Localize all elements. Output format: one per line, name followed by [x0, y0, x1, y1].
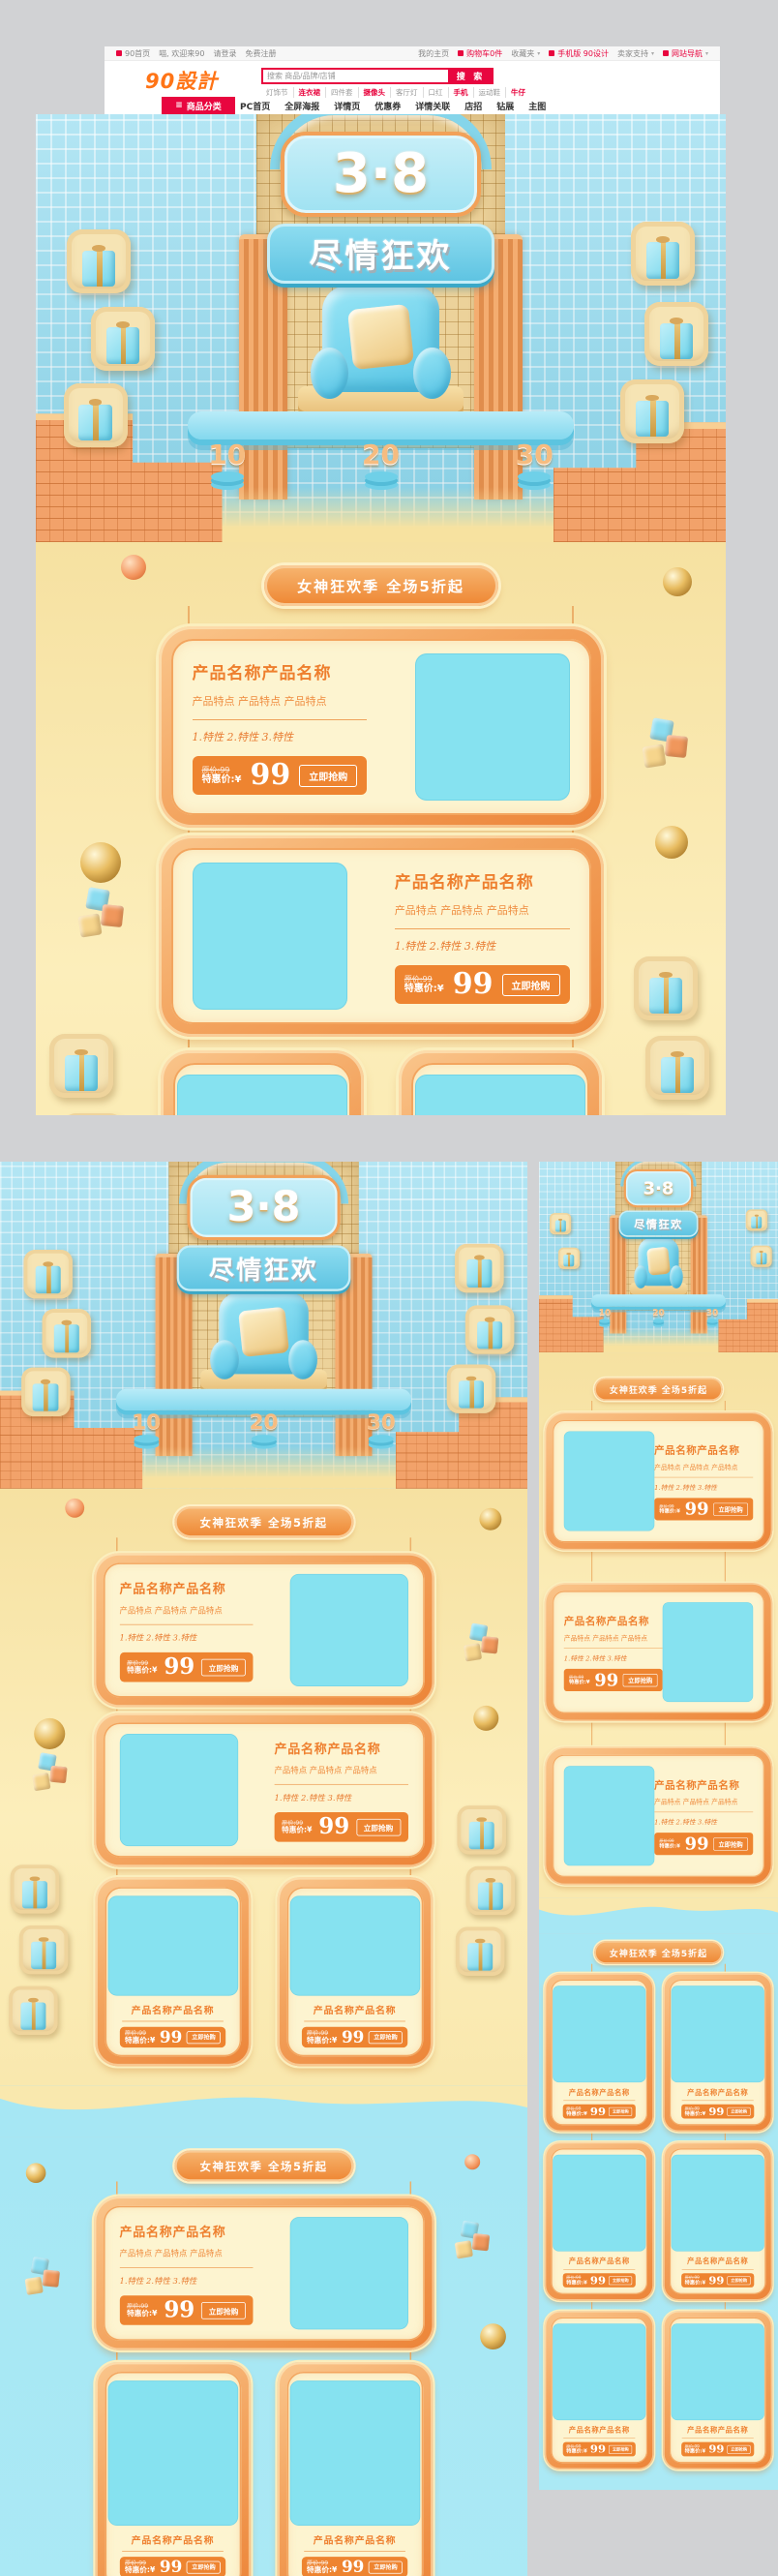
- product-title: 产品名称产品名称: [687, 2256, 748, 2266]
- product-card: 产品名称产品名称 产品特点 产品特点 产品特点 1.特性 2.特性 3.特性 原…: [159, 626, 604, 828]
- gold-sphere: [26, 2163, 46, 2183]
- buy-now-button: 立即抢购: [187, 2561, 221, 2573]
- price-box: 原价:99特惠价:¥ 99 立即抢购: [120, 2027, 226, 2047]
- original-price: 原价:99: [127, 2303, 157, 2310]
- product-title: 产品名称产品名称: [193, 659, 368, 683]
- promo-section-yellow: 女神狂欢季 全场5折起 产品名称产品名称 产品特点 产品特点 产品特点 1.特性…: [36, 542, 726, 1115]
- product-info: 产品名称产品名称 产品特点 产品特点 产品特点 1.特性 2.特性 3.特性 原…: [119, 2222, 253, 2325]
- pillow: [347, 304, 414, 370]
- page: 90首页 喵, 欢迎来90 请登录 免费注册 我的主页 购物车0件 收藏夹▾ 手…: [0, 0, 778, 2576]
- connector: [591, 2301, 725, 2312]
- price-label: 特惠价:¥: [685, 2111, 706, 2117]
- podium-number: 20: [652, 1308, 664, 1323]
- gold-sphere: [479, 1508, 501, 1530]
- cube-trio: [456, 2222, 490, 2266]
- gift-shelf: [9, 1986, 57, 2035]
- nav-link-pc-home[interactable]: PC首页: [240, 100, 270, 112]
- cart-icon: [458, 50, 464, 56]
- product-card: 产品名称产品名称 原价:99特惠价:¥ 99 立即抢购: [663, 1973, 772, 2132]
- podium-number: 20: [362, 441, 400, 482]
- cube-trio: [643, 719, 688, 777]
- product-info: 产品名称产品名称 产品特点 产品特点 产品特点 1.特性 2.特性 3.特性 原…: [193, 659, 368, 795]
- price-value: 99: [594, 1672, 618, 1689]
- product-title: 产品名称产品名称: [119, 1578, 253, 1596]
- product-title: 产品名称产品名称: [119, 2222, 253, 2240]
- gift-shelf: [456, 1926, 504, 1975]
- utility-bar-left: 90首页 喵, 欢迎来90 请登录 免费注册: [116, 48, 276, 59]
- product-card: 产品名称产品名称 产品特点 产品特点 产品特点 1.特性 2.特性 3.特性 原…: [94, 1713, 434, 1867]
- price-box: 原价:99特惠价:¥ 99 立即抢购: [120, 2557, 226, 2576]
- topbar-link-cart[interactable]: 购物车0件: [458, 48, 502, 59]
- gift-box: [466, 1259, 492, 1288]
- product-title: 产品名称产品名称: [654, 1442, 753, 1457]
- chevron-down-icon: ▾: [651, 50, 654, 57]
- product-image-placeholder: [553, 2155, 645, 2252]
- divider: [681, 2101, 754, 2102]
- promo-section-yellow: 女神狂欢季 全场5折起 产品名称产品名称 产品特点 产品特点 产品特点 1.特性…: [539, 1352, 778, 1898]
- product-image-placeholder: [119, 1734, 237, 1846]
- gift-box: [106, 327, 139, 363]
- original-price: 原价:99: [202, 766, 242, 774]
- price-box: 原价:99特惠价:¥ 99 立即抢购: [119, 2295, 253, 2325]
- buy-now-button: 立即抢购: [299, 765, 357, 787]
- price-value: 99: [590, 2443, 606, 2455]
- brick-steps-right: [718, 1299, 778, 1352]
- menu-icon: ≡: [175, 101, 183, 110]
- price-box: 原价:99特惠价:¥ 99 立即抢购: [654, 1498, 753, 1520]
- gold-sphere: [34, 1718, 65, 1749]
- gift-shelf: [620, 379, 684, 443]
- product-title: 产品名称产品名称: [654, 1776, 753, 1791]
- price-label: 特惠价:¥: [566, 2111, 587, 2117]
- buy-now-button: 立即抢购: [623, 1674, 658, 1686]
- stage-platform: [116, 1389, 411, 1410]
- coin-pedestal: [365, 471, 398, 482]
- gold-sphere: [473, 1706, 498, 1731]
- gift-box: [78, 405, 111, 440]
- product-card: 产品名称产品名称 原价:99特惠价:¥ 99 立即抢购: [277, 1877, 433, 2066]
- armchair: [219, 1292, 309, 1374]
- product-specs: 1.特性 2.特性 3.特性: [564, 1653, 663, 1663]
- gift-shelf: [751, 1246, 772, 1267]
- original-price: 原价:99: [307, 2029, 337, 2036]
- promo-38-sign: 3·8: [188, 1175, 341, 1241]
- coin-pedestal: [134, 1435, 159, 1442]
- gift-box: [469, 1822, 494, 1850]
- gift-shelf: [455, 1243, 503, 1291]
- cube-trio: [464, 1624, 498, 1669]
- product-image-placeholder: [415, 653, 570, 801]
- podium-number: 10: [208, 441, 246, 482]
- original-price: 原价:99: [566, 2275, 587, 2280]
- connector: [116, 1537, 411, 1553]
- category-button[interactable]: ≡商品分类: [162, 97, 235, 114]
- product-card: 产品名称产品名称 产品特点 产品特点 产品特点 1.特性 2.特性 3.特性 原…: [94, 1553, 434, 1707]
- original-price: 原价:99: [685, 2444, 706, 2449]
- cube-trio: [26, 2258, 60, 2302]
- product-image-placeholder: [289, 1895, 420, 1995]
- gift-shelf: [644, 302, 708, 366]
- orange-sphere: [464, 2154, 480, 2169]
- price-box: 原价:99特惠价:¥ 99 立即抢购: [563, 2442, 636, 2457]
- gift-shelf: [49, 1034, 113, 1098]
- price-box: 原价:99特惠价:¥ 99 立即抢购: [681, 2105, 754, 2119]
- coin-pedestal: [518, 471, 551, 482]
- podium-number: 10: [132, 1411, 161, 1442]
- gift-box: [649, 978, 682, 1014]
- nav-link-coupon[interactable]: 优惠券: [374, 100, 401, 112]
- connector: [116, 2181, 411, 2196]
- gift-shelf: [21, 1368, 70, 1416]
- home-icon: [116, 50, 122, 56]
- product-image-placeholder: [564, 1766, 655, 1865]
- gold-sphere: [80, 842, 121, 883]
- product-title: 产品名称产品名称: [314, 2002, 397, 2016]
- price-label: 特惠价:¥: [127, 2310, 157, 2318]
- nav-link-drill-show[interactable]: 钻展: [496, 100, 514, 112]
- cube-trio: [33, 1754, 67, 1799]
- section-banner: 女神狂欢季 全场5折起: [174, 1506, 353, 1537]
- coin-pedestal: [369, 1435, 394, 1442]
- product-info: 产品名称产品名称 产品特点 产品特点 产品特点 1.特性 2.特性 3.特性 原…: [564, 1613, 663, 1691]
- product-card: 产品名称产品名称 原价:99特惠价:¥ 99 立即抢购: [545, 2311, 654, 2470]
- podium-numbers: 10 20 30: [599, 1308, 718, 1323]
- product-features: 产品特点 产品特点 产品特点: [395, 902, 570, 918]
- buy-now-button: 立即抢购: [728, 2445, 751, 2454]
- divider: [119, 2267, 253, 2268]
- utility-bar: 90首页 喵, 欢迎来90 请登录 免费注册 我的主页 购物车0件 收藏夹▾ 手…: [105, 46, 720, 61]
- buy-now-button: 立即抢购: [713, 1502, 748, 1515]
- podium-number: 30: [516, 441, 554, 482]
- promo-slogan-sign: 尽情狂欢: [619, 1210, 699, 1237]
- stage-platform: [188, 411, 574, 439]
- buy-now-button: 立即抢购: [356, 1818, 401, 1835]
- coin-pedestal: [211, 471, 244, 482]
- product-image-placeholder: [415, 1075, 585, 1115]
- hero-scene: 3·8 尽情狂欢 10 20 30: [36, 114, 726, 542]
- price-box: 原价:99特惠价:¥ 99 立即抢购: [302, 2557, 408, 2576]
- original-price: 原价:99: [127, 1659, 157, 1666]
- divider: [681, 2269, 754, 2270]
- price-label: 特惠价:¥: [685, 2280, 706, 2286]
- gift-box: [646, 242, 679, 278]
- product-card: 产品名称产品名称 原价:99特惠价:¥ 99 立即抢购: [95, 1877, 251, 2066]
- divider: [304, 2551, 405, 2552]
- hero-scene: 3·8 尽情狂欢 10 20 30: [0, 1162, 527, 1489]
- product-image-placeholder: [553, 1985, 645, 2082]
- price-box: 原价:99特惠价:¥ 99 立即抢购: [563, 2273, 636, 2288]
- product-info: 产品名称产品名称 产品特点 产品特点 产品特点 1.特性 2.特性 3.特性 原…: [274, 1739, 407, 1842]
- gift-box: [82, 251, 115, 287]
- product-title: 产品名称产品名称: [687, 2087, 748, 2098]
- section-banner: 女神狂欢季 全场5折起: [264, 565, 498, 606]
- divider: [193, 719, 368, 720]
- site-logo[interactable]: 90設計: [145, 66, 218, 95]
- topbar-link-home[interactable]: 90首页: [116, 48, 150, 59]
- product-image-placeholder: [289, 1574, 407, 1686]
- product-grid: 产品名称产品名称 原价:99特惠价:¥ 99 立即抢购 产品: [539, 2311, 778, 2470]
- gift-shelf: [558, 1248, 580, 1269]
- header-main: 90設計 搜 索 灯饰节 连衣裙 四件套 摄像头 客厅灯 口红 手机 运动鞋 牛…: [105, 61, 720, 97]
- product-card: 产品名称产品名称 原价:99特惠价:¥ 99 立即抢购: [95, 2362, 251, 2576]
- promo-section-blue: 女神狂欢季 全场5折起 产品名称产品名称 原价:99特惠价:¥ 99 立即抢购: [539, 1934, 778, 2490]
- nav-link-fullscreen-poster[interactable]: 全屏海报: [284, 100, 319, 112]
- product-grid: 产品名称产品名称 原价:99特惠价:¥ 99 立即抢购 产品: [36, 1050, 726, 1115]
- product-info: 产品名称产品名称 产品特点 产品特点 产品特点 1.特性 2.特性 3.特性 原…: [654, 1442, 753, 1521]
- cube-trio: [79, 889, 124, 947]
- connector: [116, 2350, 411, 2362]
- promo-section-yellow: 女神狂欢季 全场5折起 产品名称产品名称 产品特点 产品特点 产品特点 1.特性…: [0, 1489, 527, 2085]
- price-value: 99: [160, 2029, 182, 2046]
- price-label: 特惠价:¥: [125, 2037, 155, 2046]
- search-button[interactable]: 搜 索: [448, 68, 494, 84]
- gift-box: [54, 1325, 79, 1353]
- product-grid: 产品名称产品名称 原价:99特惠价:¥ 99 立即抢购 产品: [539, 1973, 778, 2132]
- product-title: 产品名称产品名称: [132, 2002, 215, 2016]
- gift-shelf: [746, 1209, 767, 1230]
- connector: [188, 1037, 574, 1050]
- podium-numbers: 10 20 30: [132, 1411, 396, 1442]
- topbar-link-myhome[interactable]: 我的主页: [418, 48, 449, 59]
- price-value: 99: [685, 1835, 709, 1853]
- product-specs: 1.特性 2.特性 3.特性: [654, 1482, 753, 1492]
- divider: [274, 1784, 407, 1785]
- original-price: 原价:99: [566, 2444, 587, 2449]
- product-card: 产品名称产品名称 原价:99特惠价:¥ 99 立即抢购: [663, 2311, 772, 2470]
- product-specs: 1.特性 2.特性 3.特性: [274, 1792, 407, 1803]
- gift-box: [751, 1217, 762, 1228]
- product-info: 产品名称产品名称 产品特点 产品特点 产品特点 1.特性 2.特性 3.特性 原…: [119, 1578, 253, 1682]
- price-box: 原价:99特惠价:¥ 99 立即抢购: [563, 2105, 636, 2119]
- gift-shelf: [465, 1306, 514, 1354]
- gift-box: [660, 323, 693, 359]
- main-nav-row: ≡商品分类 PC首页 全屏海报 详情页 优惠券 详情关联 店招 钻展 主图: [105, 97, 720, 114]
- product-image-placeholder: [672, 2155, 764, 2252]
- template-preview-small[interactable]: 3·8 尽情狂欢 10 20 30 女神狂欢季 全场5折起: [539, 1162, 778, 2507]
- connector: [188, 606, 574, 626]
- product-card: 产品名称产品名称 原价:99特惠价:¥ 99 立即抢购: [399, 1050, 602, 1115]
- gift-box: [467, 1943, 493, 1971]
- original-price: 原价:99: [125, 2560, 155, 2566]
- price-label: 特惠价:¥: [307, 2566, 337, 2575]
- product-image-placeholder: [672, 2323, 764, 2420]
- product-info: 产品名称产品名称 产品特点 产品特点 产品特点 1.特性 2.特性 3.特性 原…: [654, 1776, 753, 1855]
- price-label: 特惠价:¥: [566, 2448, 587, 2454]
- connector: [116, 1867, 411, 1878]
- product-features: 产品特点 产品特点 产品特点: [119, 2248, 253, 2259]
- price-value: 99: [164, 2299, 194, 2321]
- product-features: 产品特点 产品特点 产品特点: [564, 1633, 663, 1643]
- promo-38-sign: 3·8: [281, 132, 481, 217]
- buy-now-button: 立即抢购: [728, 2276, 751, 2285]
- buy-now-button: 立即抢购: [201, 1658, 246, 1676]
- topbar-link-seller-support[interactable]: 卖家支持▾: [617, 48, 654, 59]
- buy-now-button: 立即抢购: [369, 2031, 403, 2044]
- gift-box: [65, 1055, 98, 1091]
- product-grid: 产品名称产品名称 原价:99特惠价:¥ 99 立即抢购 产品: [539, 2142, 778, 2301]
- price-label: 特惠价:¥: [659, 1843, 680, 1849]
- price-box: 原价:99特惠价:¥ 99 立即抢购: [302, 2027, 408, 2047]
- price-value: 99: [318, 1816, 349, 1838]
- product-title: 产品名称产品名称: [569, 2425, 630, 2436]
- gold-sphere: [655, 826, 688, 859]
- gift-shelf: [43, 1309, 91, 1357]
- product-image-placeholder: [553, 2323, 645, 2420]
- product-title: 产品名称产品名称: [569, 2256, 630, 2266]
- podium-number: 20: [250, 1411, 279, 1442]
- price-box: 原价:99特惠价:¥ 99 立即抢购: [274, 1812, 407, 1842]
- gift-box: [636, 401, 669, 437]
- template-design: 3·8 尽情狂欢 10 20 30 女神狂欢季 全场5折起: [36, 114, 726, 1115]
- price-value: 99: [590, 2106, 606, 2117]
- topbar-link-favorites[interactable]: 收藏夹▾: [511, 48, 540, 59]
- pillow: [238, 1307, 289, 1357]
- nav-link-shop-sign[interactable]: 店招: [464, 100, 482, 112]
- price-label: 特惠价:¥: [685, 2448, 706, 2454]
- buy-now-button: 立即抢购: [187, 2031, 221, 2044]
- product-specs: 1.特性 2.特性 3.特性: [193, 729, 368, 744]
- divider: [563, 2438, 636, 2439]
- buy-now-button: 立即抢购: [502, 974, 560, 996]
- connector: [591, 1964, 725, 1973]
- original-price: 原价:99: [685, 2275, 706, 2280]
- chevron-down-icon: ▾: [537, 50, 540, 57]
- price-value: 99: [708, 2106, 724, 2117]
- product-specs: 1.特性 2.特性 3.特性: [119, 1631, 253, 1643]
- promo-slogan-sign: 尽情狂欢: [177, 1245, 351, 1290]
- template-preview-large[interactable]: 3·8 尽情狂欢 10 20 30 女神狂欢季 全场5折起: [36, 114, 726, 1115]
- utility-bar-right: 我的主页 购物车0件 收藏夹▾ 手机版 90设计 卖家支持▾ 网站导航▾: [418, 48, 708, 59]
- price-label: 特惠价:¥: [282, 1826, 312, 1834]
- section-banner: 女神狂欢季 全场5折起: [174, 2150, 353, 2181]
- gift-shelf: [67, 229, 131, 293]
- promo-slogan-sign: 尽情狂欢: [267, 224, 494, 284]
- original-price: 原价:99: [404, 975, 444, 984]
- product-title: 产品名称产品名称: [274, 1739, 407, 1757]
- gift-shelf: [466, 1866, 515, 1915]
- gift-box: [756, 1253, 766, 1264]
- original-price: 原价:99: [307, 2560, 337, 2566]
- gift-shelf: [447, 1364, 495, 1412]
- divider: [122, 2551, 224, 2552]
- price-box: 原价:99特惠价:¥ 99 立即抢购: [681, 2442, 754, 2457]
- product-title: 产品名称产品名称: [132, 2532, 215, 2547]
- topbar-link-mobile[interactable]: 手机版 90设计: [549, 48, 609, 59]
- gift-shelf: [91, 307, 155, 371]
- divider: [654, 1477, 753, 1478]
- product-image-placeholder: [663, 1602, 754, 1702]
- price-value: 99: [590, 2275, 606, 2287]
- gold-sphere: [480, 2323, 506, 2349]
- connector: [188, 828, 574, 835]
- coin-pedestal: [706, 1318, 718, 1322]
- gift-box: [33, 1383, 58, 1411]
- wave-divider: [539, 1898, 778, 1934]
- gift-shelf: [11, 1864, 59, 1913]
- topbar-link-register[interactable]: 免费注册: [245, 48, 276, 59]
- product-image-placeholder: [564, 1432, 655, 1531]
- gift-box: [31, 1941, 56, 1969]
- gift-shelf: [634, 956, 698, 1020]
- buy-now-button: 立即抢购: [728, 2107, 751, 2116]
- section-banner: 女神狂欢季 全场5折起: [594, 1378, 722, 1401]
- price-label: 特惠价:¥: [127, 1666, 157, 1675]
- product-card: 产品名称产品名称 产品特点 产品特点 产品特点 1.特性 2.特性 3.特性 原…: [545, 1746, 772, 1885]
- price-value: 99: [708, 2275, 724, 2287]
- product-features: 产品特点 产品特点 产品特点: [193, 693, 368, 709]
- gift-shelf: [645, 1036, 709, 1100]
- price-value: 99: [250, 761, 290, 790]
- gift-box: [22, 1881, 47, 1909]
- gold-sphere: [663, 567, 692, 596]
- gift-box: [459, 1380, 484, 1409]
- coin-pedestal: [599, 1318, 611, 1322]
- gift-shelf: [61, 1113, 125, 1115]
- product-card: 产品名称产品名称 产品特点 产品特点 产品特点 1.特性 2.特性 3.特性 原…: [94, 2197, 434, 2350]
- stage-platform: [591, 1294, 725, 1307]
- gift-box: [477, 1321, 502, 1349]
- connector: [591, 1401, 725, 1412]
- orange-sphere: [65, 1499, 84, 1518]
- product-grid: 产品名称产品名称 原价:99特惠价:¥ 99 立即抢购 产品: [0, 2362, 527, 2576]
- original-price: 原价:99: [569, 1675, 590, 1680]
- template-preview-medium[interactable]: 3·8 尽情狂欢 10 20 30 女神狂欢季 全场5折起: [0, 1162, 527, 2576]
- price-label: 特惠价:¥: [125, 2566, 155, 2575]
- divider: [681, 2438, 754, 2439]
- product-info: 产品名称产品名称 产品特点 产品特点 产品特点 1.特性 2.特性 3.特性 原…: [395, 868, 570, 1004]
- original-price: 原价:99: [659, 1838, 680, 1843]
- podium-number: 30: [706, 1308, 718, 1323]
- buy-now-button: 立即抢购: [713, 1837, 748, 1850]
- product-card: 产品名称产品名称 原价:99特惠价:¥ 99 立即抢购: [663, 2142, 772, 2301]
- price-box: 原价:99特惠价:¥ 99 立即抢购: [193, 756, 368, 795]
- original-price: 原价:99: [685, 2106, 706, 2111]
- section-banner: 女神狂欢季 全场5折起: [594, 1941, 722, 1964]
- product-card: 产品名称产品名称 原价:99特惠价:¥ 99 立即抢购: [545, 2142, 654, 2301]
- product-features: 产品特点 产品特点 产品特点: [119, 1604, 253, 1616]
- topbar-link-login[interactable]: 请登录: [213, 48, 236, 59]
- price-value: 99: [453, 970, 494, 999]
- divider: [304, 2021, 405, 2022]
- search-input[interactable]: [261, 68, 448, 84]
- gift-box: [555, 1221, 566, 1232]
- nav-link-detail-page[interactable]: 详情页: [334, 100, 360, 112]
- product-card: 产品名称产品名称 原价:99特惠价:¥ 99 立即抢购: [277, 2362, 433, 2576]
- price-label: 特惠价:¥: [307, 2037, 337, 2046]
- product-title: 产品名称产品名称: [314, 2532, 397, 2547]
- divider: [563, 2269, 636, 2270]
- nav-link-detail-related[interactable]: 详情关联: [415, 100, 450, 112]
- price-value: 99: [685, 1500, 709, 1518]
- grid-icon: [663, 50, 669, 56]
- template-design: 3·8 尽情狂欢 10 20 30 女神狂欢季 全场5折起: [0, 1162, 527, 2576]
- gift-box: [478, 1882, 503, 1910]
- product-image-placeholder: [672, 1985, 764, 2082]
- product-specs: 1.特性 2.特性 3.特性: [395, 938, 570, 954]
- product-title: 产品名称产品名称: [569, 2087, 630, 2098]
- phone-icon: [549, 50, 554, 56]
- coin-pedestal: [252, 1435, 277, 1442]
- main-nav: PC首页 全屏海报 详情页 优惠券 详情关联 店招 钻展 主图: [240, 97, 546, 114]
- product-title: 产品名称产品名称: [395, 868, 570, 893]
- podium-number: 30: [367, 1411, 396, 1442]
- chevron-down-icon: ▾: [705, 50, 708, 57]
- nav-link-main-image[interactable]: 主图: [528, 100, 546, 112]
- topbar-link-sitemap[interactable]: 网站导航▾: [663, 48, 708, 59]
- armchair: [638, 1238, 678, 1286]
- product-image-placeholder: [193, 863, 347, 1010]
- divider: [563, 2101, 636, 2102]
